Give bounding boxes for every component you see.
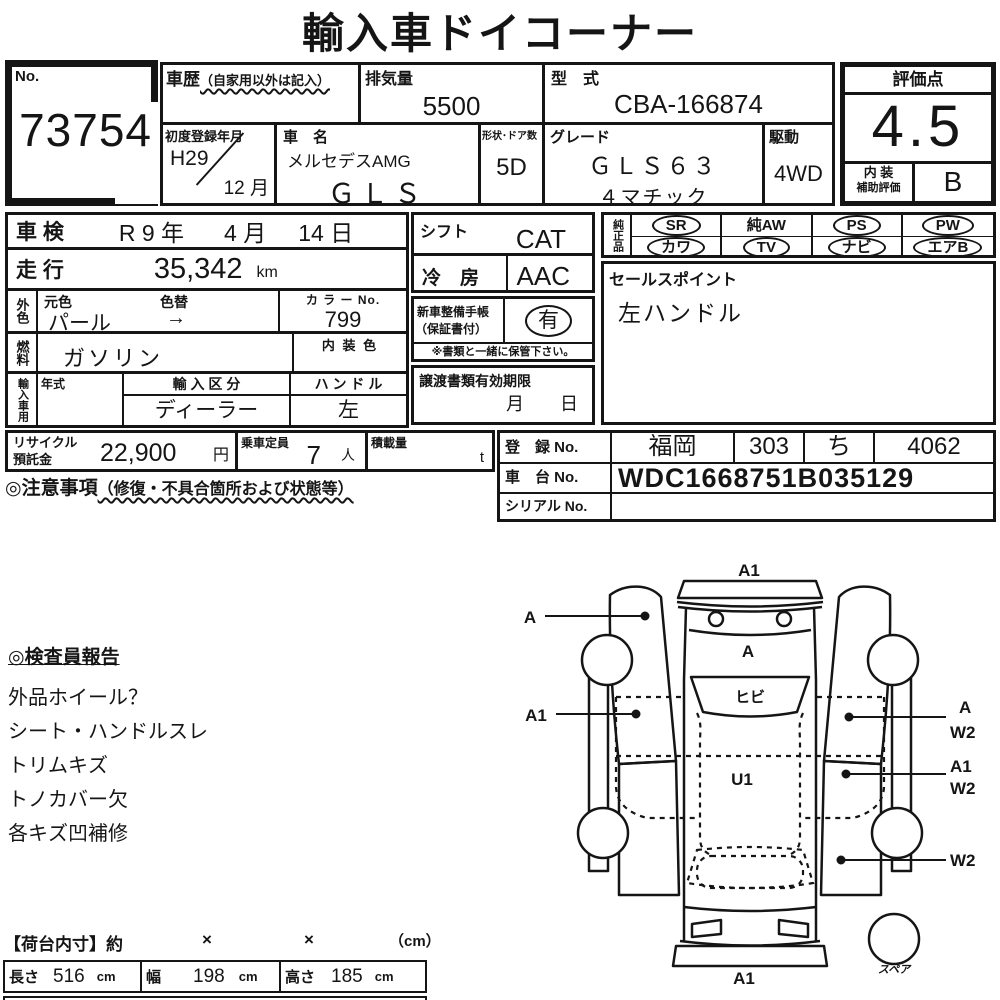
car-name-model: ＧＬＳ	[277, 172, 478, 211]
chassis-row: 車 台 No. WDC1668751B035129	[500, 464, 993, 494]
history-note: （自家用以外は記入）	[200, 73, 330, 88]
left-front-wheel	[582, 635, 632, 685]
roof-dashed-right	[789, 713, 803, 855]
recycle-fee-label1: リサイクル	[13, 434, 77, 451]
diagram-label-right-front-w2: W2	[950, 723, 976, 742]
registration-region: 福岡	[612, 433, 735, 462]
registration-kana: ち	[805, 433, 875, 462]
mileage-label: 走 行	[16, 254, 64, 284]
right-tail-light	[779, 920, 808, 937]
diagram-label-windshield: ヒビ	[735, 689, 765, 706]
genuine-parts-table: 純正品 SR 純AW PS PW カワ TV ナビ エアB	[601, 212, 996, 258]
displacement-label: 排気量	[365, 65, 542, 89]
capacity-cell: 乗車定員 7 人	[235, 430, 368, 472]
diagram-label-roof: U1	[731, 770, 753, 789]
interior-color-cell: 内 装 色	[292, 334, 406, 371]
sales-point-value: 左ハンドル	[618, 294, 993, 328]
capacity-label: 乗車定員	[241, 434, 289, 451]
first-registration-cell: 初度登録年月 H29 12 月	[160, 122, 277, 206]
callout-dot-left-a	[642, 613, 649, 620]
genuine-parts-label: 純正品	[604, 215, 632, 255]
genuine-item-ps: PS	[833, 215, 881, 236]
diagram-label-spare: スペア	[878, 964, 912, 976]
chassis-value: WDC1668751B035129	[612, 465, 993, 491]
ac-value: AAC	[517, 261, 570, 292]
front-bumper	[678, 581, 822, 598]
doors-cell: 形状･ドア数 5D	[478, 122, 545, 206]
recycle-fee-label2: 預託金	[13, 451, 77, 468]
maintenance-book-note: ※書類と一緒に保管下さい。	[414, 342, 592, 359]
score-value: 4.5	[845, 95, 991, 161]
shift-label: シフト	[420, 218, 468, 242]
genuine-cell-pw: PW	[903, 215, 993, 237]
diagram-label-hood: A	[742, 642, 754, 661]
no-box-corner-tick	[151, 66, 158, 102]
capacity-unit: 人	[341, 445, 355, 465]
serial-label: シリアル No.	[500, 494, 612, 520]
interior-grade-value: B	[915, 164, 991, 201]
cargo-next-row-partial	[3, 996, 427, 1000]
color-no-cell: カ ラ ー No. 799	[280, 291, 406, 331]
load-unit: t	[480, 449, 484, 466]
cargo-width-unit: cm	[239, 969, 258, 984]
diagram-label-left-fender: A	[524, 608, 536, 627]
auction-sheet: 輸入車ドイコーナー No. 73754 車歴（自家用以外は記入） 排気量 550…	[0, 0, 1000, 1000]
model-year-cell: 年式	[38, 374, 124, 425]
handle-value: 左	[291, 396, 406, 426]
load-cell: 積載量 t	[365, 430, 495, 472]
inspector-heading: ◎検査員報告	[8, 642, 408, 669]
cargo-length-cell: 長さ 516 cm	[3, 960, 142, 993]
cargo-height-unit: cm	[375, 969, 394, 984]
mileage-unit: km	[257, 264, 278, 282]
registration-class: 303	[735, 433, 805, 462]
sales-point-box: セールスポイント 左ハンドル	[601, 261, 996, 425]
genuine-cell-ps: PS	[813, 215, 903, 237]
drive-cell: 駆動 4WD	[762, 122, 835, 206]
maintenance-book-available-mark: 有	[525, 305, 572, 337]
mileage-value: 35,342	[154, 253, 243, 286]
genuine-item-airb: エアB	[913, 237, 982, 258]
first-reg-month: 12 月	[224, 173, 269, 200]
interior-grade-label: 内 装 補助評価	[845, 164, 915, 201]
transfer-docs-label: 譲渡書類有効期限	[419, 371, 592, 391]
car-name-label: 車 名	[283, 126, 478, 147]
inspector-item: トリムキズ	[8, 749, 408, 783]
inspector-item: トノカバー欠	[8, 783, 408, 817]
spare-tire	[869, 914, 919, 964]
grade-line1: ＧＬＳ６３	[545, 147, 762, 181]
callout-dot-right-w2	[838, 857, 845, 864]
displacement-cell: 排気量 5500	[358, 62, 545, 125]
ac-label: 冷 房	[422, 263, 479, 290]
cargo-length-label: 長さ	[9, 966, 39, 987]
auction-no-box: No. 73754	[5, 60, 158, 206]
registration-row: 登 録 No. 福岡 303 ち 4062	[500, 433, 993, 464]
floor-dashed-left	[616, 697, 698, 818]
maintenance-book-value-cell: 有	[505, 299, 592, 342]
inspector-item: シート・ハンドルスレ	[8, 715, 408, 749]
interior-color-label: 内 装 色	[294, 335, 406, 354]
handle-label: ハ ン ド ル	[291, 374, 406, 396]
auction-no-value: 73754	[19, 103, 152, 157]
genuine-item-sr: SR	[652, 215, 701, 236]
first-reg-label: 初度登録年月	[165, 126, 274, 145]
right-front-wheel	[868, 635, 918, 685]
chassis-label: 車 台 No.	[500, 464, 612, 492]
color-no-label: カ ラ ー No.	[280, 291, 406, 308]
diagram-label-right-rear-w2: W2	[950, 779, 976, 798]
color-no-value: 799	[280, 308, 406, 332]
shaken-row: 車 検 R 9 年 4 月 14 日	[5, 212, 409, 250]
registration-label: 登 録 No.	[500, 433, 612, 462]
import-label: 輸入車用	[8, 374, 38, 425]
cargo-width-value: 198	[193, 966, 225, 988]
history-label: 車歴	[166, 70, 200, 89]
drive-label: 駆動	[769, 126, 832, 147]
import-type-cell: 輸 入 区 分 ディーラー	[124, 374, 291, 425]
callout-dot-left-a1	[633, 711, 640, 718]
inspector-item: 外品ホイール？	[8, 681, 408, 715]
genuine-item-kawa: カワ	[647, 237, 705, 258]
exterior-color-row: 外色 元色 色替 パール → カ ラ ー No. 799	[5, 288, 409, 334]
registration-table: 登 録 No. 福岡 303 ち 4062 車 台 No. WDC1668751…	[497, 430, 996, 522]
import-type-label: 輸 入 区 分	[124, 374, 289, 396]
cargo-height-cell: 高さ 185 cm	[279, 960, 427, 993]
score-label: 評価点	[845, 67, 991, 95]
handle-cell: ハ ン ド ル 左	[291, 374, 406, 425]
interior-grade-label2: 補助評価	[845, 181, 912, 195]
page-title: 輸入車ドイコーナー	[0, 0, 1000, 61]
ac-divider	[506, 256, 508, 290]
mileage-row: 走 行 35,342 km	[5, 247, 409, 291]
genuine-item-pw: PW	[922, 215, 974, 236]
transfer-docs-cell: 譲渡書類有効期限 月 日	[411, 365, 595, 425]
color-change-value: →	[166, 307, 186, 330]
model-code-label: 型 式	[551, 65, 832, 89]
cargo-x1: ×	[202, 930, 212, 950]
capacity-value: 7	[307, 440, 321, 471]
recycle-fee-value: 22,900	[100, 439, 176, 468]
sales-point-label: セールスポイント	[609, 266, 993, 290]
front-bumper-trim	[677, 602, 823, 607]
left-rear-wheel	[578, 808, 628, 858]
rear-bumper	[673, 946, 827, 966]
cargo-width-cell: 幅 198 cm	[140, 960, 281, 993]
ac-cell: 冷 房 AAC	[411, 253, 595, 293]
cargo-x2: ×	[304, 930, 314, 950]
genuine-parts-grid: SR 純AW PS PW カワ TV ナビ エアB	[632, 215, 993, 255]
cargo-height-label: 高さ	[285, 966, 315, 987]
doors-label: 形状･ドア数	[482, 127, 542, 142]
shaken-year: R 9 年	[119, 214, 184, 248]
left-washer-nozzle	[709, 612, 723, 626]
grade-label: グレード	[550, 126, 762, 147]
rear-deck-line	[684, 907, 816, 911]
diagram-label-rear: A1	[733, 969, 755, 988]
genuine-cell-sr: SR	[632, 215, 722, 237]
right-washer-nozzle	[777, 612, 791, 626]
caution-heading-note: （修復・不具合箇所および状態等）	[98, 481, 354, 498]
recycle-fee-unit: 円	[213, 441, 229, 465]
shaken-month: 4 月	[224, 214, 266, 248]
shift-value: CAT	[516, 224, 566, 255]
grade-line2: ４マチック	[545, 181, 762, 210]
callout-dot-right-a1-w2	[843, 771, 850, 778]
doors-value: 5D	[481, 154, 542, 182]
diagram-label-left-door: A1	[525, 706, 547, 725]
score-box: 評価点 4.5 内 装 補助評価 B	[840, 62, 996, 206]
genuine-item-navi: ナビ	[828, 237, 886, 258]
fuel-label: 燃料	[8, 334, 38, 371]
model-code-value: CBA-166874	[545, 89, 832, 120]
genuine-cell-tv: TV	[722, 237, 812, 258]
displacement-value: 5500	[361, 91, 542, 122]
recycle-fee-label: リサイクル 預託金	[13, 434, 77, 468]
floor-dashed-right	[802, 697, 884, 818]
genuine-item-tv: TV	[743, 237, 790, 258]
drive-value: 4WD	[765, 161, 832, 187]
cargo-heading: 【荷台内寸】約	[4, 930, 123, 955]
inspector-item: 各キズ凹補修	[8, 817, 408, 851]
rear-window-inner-dashed	[697, 856, 803, 888]
body-right-edge	[814, 607, 816, 942]
diagram-label-right-front-a: A	[959, 698, 971, 717]
left-tail-light	[692, 920, 721, 937]
exterior-color-label: 外色	[8, 291, 38, 331]
base-color-cell: 元色 色替 パール →	[38, 291, 280, 331]
diagram-label-right-quarter: W2	[950, 851, 976, 870]
caution-heading-row: ◎注意事項（修復・不具合箇所および状態等）	[5, 473, 354, 500]
callout-dot-right-a-w2	[846, 714, 853, 721]
import-type-value: ディーラー	[124, 396, 289, 426]
genuine-cell-aw: 純AW	[722, 215, 812, 237]
transfer-month: 月	[506, 390, 524, 416]
interior-grade-label1: 内 装	[845, 164, 912, 181]
serial-row: シリアル No.	[500, 494, 993, 520]
right-rear-wheel	[872, 808, 922, 858]
no-box-bottom-tick	[12, 198, 115, 204]
registration-number: 4062	[875, 433, 993, 462]
genuine-cell-kawa: カワ	[632, 237, 722, 258]
diagram-label-right-rear-a1: A1	[950, 757, 972, 776]
fuel-value: ガソリン	[63, 341, 163, 373]
shift-cell: シフト CAT	[411, 212, 595, 256]
body-left-edge	[684, 607, 686, 942]
car-diagram: A1 A A ヒビ A1 A W2 U1 A1 W2 W2 A1 スペア	[500, 550, 1000, 1000]
cargo-length-value: 516	[53, 966, 85, 988]
import-row: 輸入車用 年式 輸 入 区 分 ディーラー ハ ン ド ル 左	[5, 371, 409, 428]
grade-cell: グレード ＧＬＳ６３ ４マチック	[542, 122, 765, 206]
model-code-cell: 型 式 CBA-166874	[542, 62, 835, 125]
caution-heading: ◎注意事項	[5, 478, 98, 499]
maintenance-book-cell: 新車整備手帳 （保証書付） 有 ※書類と一緒に保管下さい。	[411, 296, 595, 362]
transfer-day: 日	[560, 390, 578, 416]
first-reg-year: H29	[170, 147, 209, 171]
maintenance-book-label2: （保証書付）	[415, 320, 503, 337]
recycle-fee-cell: リサイクル 預託金 22,900 円	[5, 430, 238, 472]
load-label: 積載量	[371, 434, 407, 451]
shaken-day: 14 日	[298, 214, 353, 248]
genuine-cell-navi: ナビ	[813, 237, 903, 258]
maintenance-book-label1: 新車整備手帳	[417, 303, 503, 320]
cargo-unit-note: （cm）	[389, 930, 441, 951]
cargo-height-value: 185	[331, 966, 363, 988]
roof-dashed-left	[697, 713, 711, 855]
fuel-row: 燃料 ガソリン 内 装 色	[5, 331, 409, 374]
genuine-cell-airb: エアB	[903, 237, 993, 258]
history-cell: 車歴（自家用以外は記入）	[160, 62, 361, 125]
cargo-length-unit: cm	[97, 969, 116, 984]
diagram-label-front: A1	[738, 561, 760, 580]
shaken-label: 車 検	[16, 216, 64, 246]
car-name-brand: メルセデスAMG	[287, 147, 478, 172]
model-year-label: 年式	[41, 375, 122, 392]
genuine-item-aw: 純AW	[747, 217, 786, 234]
cargo-width-label: 幅	[146, 966, 161, 987]
car-name-cell: 車 名 メルセデスAMG ＧＬＳ	[274, 122, 481, 206]
auction-no-label: No.	[15, 68, 39, 85]
hood-front-line	[689, 630, 811, 635]
inspector-report: ◎検査員報告 外品ホイール？ シート・ハンドルスレ トリムキズ トノカバー欠 各…	[8, 642, 408, 851]
interior-grade-row: 内 装 補助評価 B	[845, 161, 991, 201]
maintenance-book-label-cell: 新車整備手帳 （保証書付）	[414, 299, 505, 342]
cargo-size-header: 【荷台内寸】約 × × （cm）	[4, 930, 444, 956]
